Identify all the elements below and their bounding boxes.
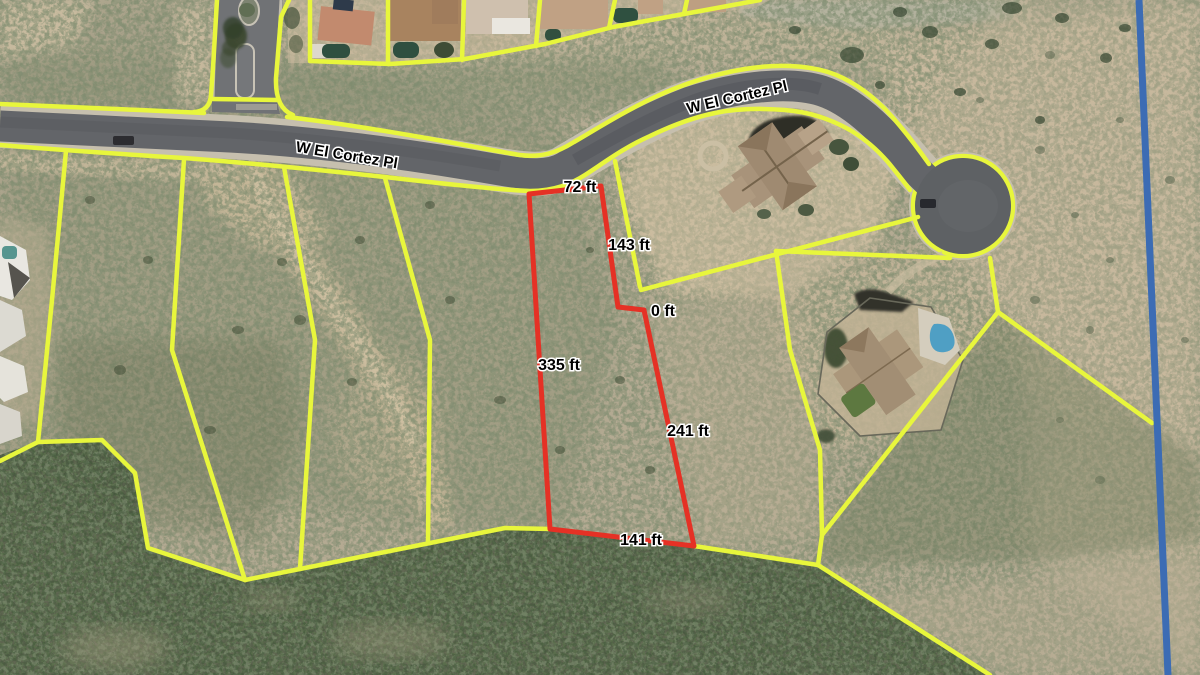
- svg-text:143 ft: 143 ft: [608, 237, 650, 254]
- svg-text:335 ft: 335 ft: [538, 357, 580, 374]
- svg-text:0 ft: 0 ft: [651, 303, 676, 320]
- svg-text:141 ft: 141 ft: [620, 532, 662, 549]
- svg-text:241 ft: 241 ft: [667, 423, 709, 440]
- svg-text:72 ft: 72 ft: [564, 179, 598, 196]
